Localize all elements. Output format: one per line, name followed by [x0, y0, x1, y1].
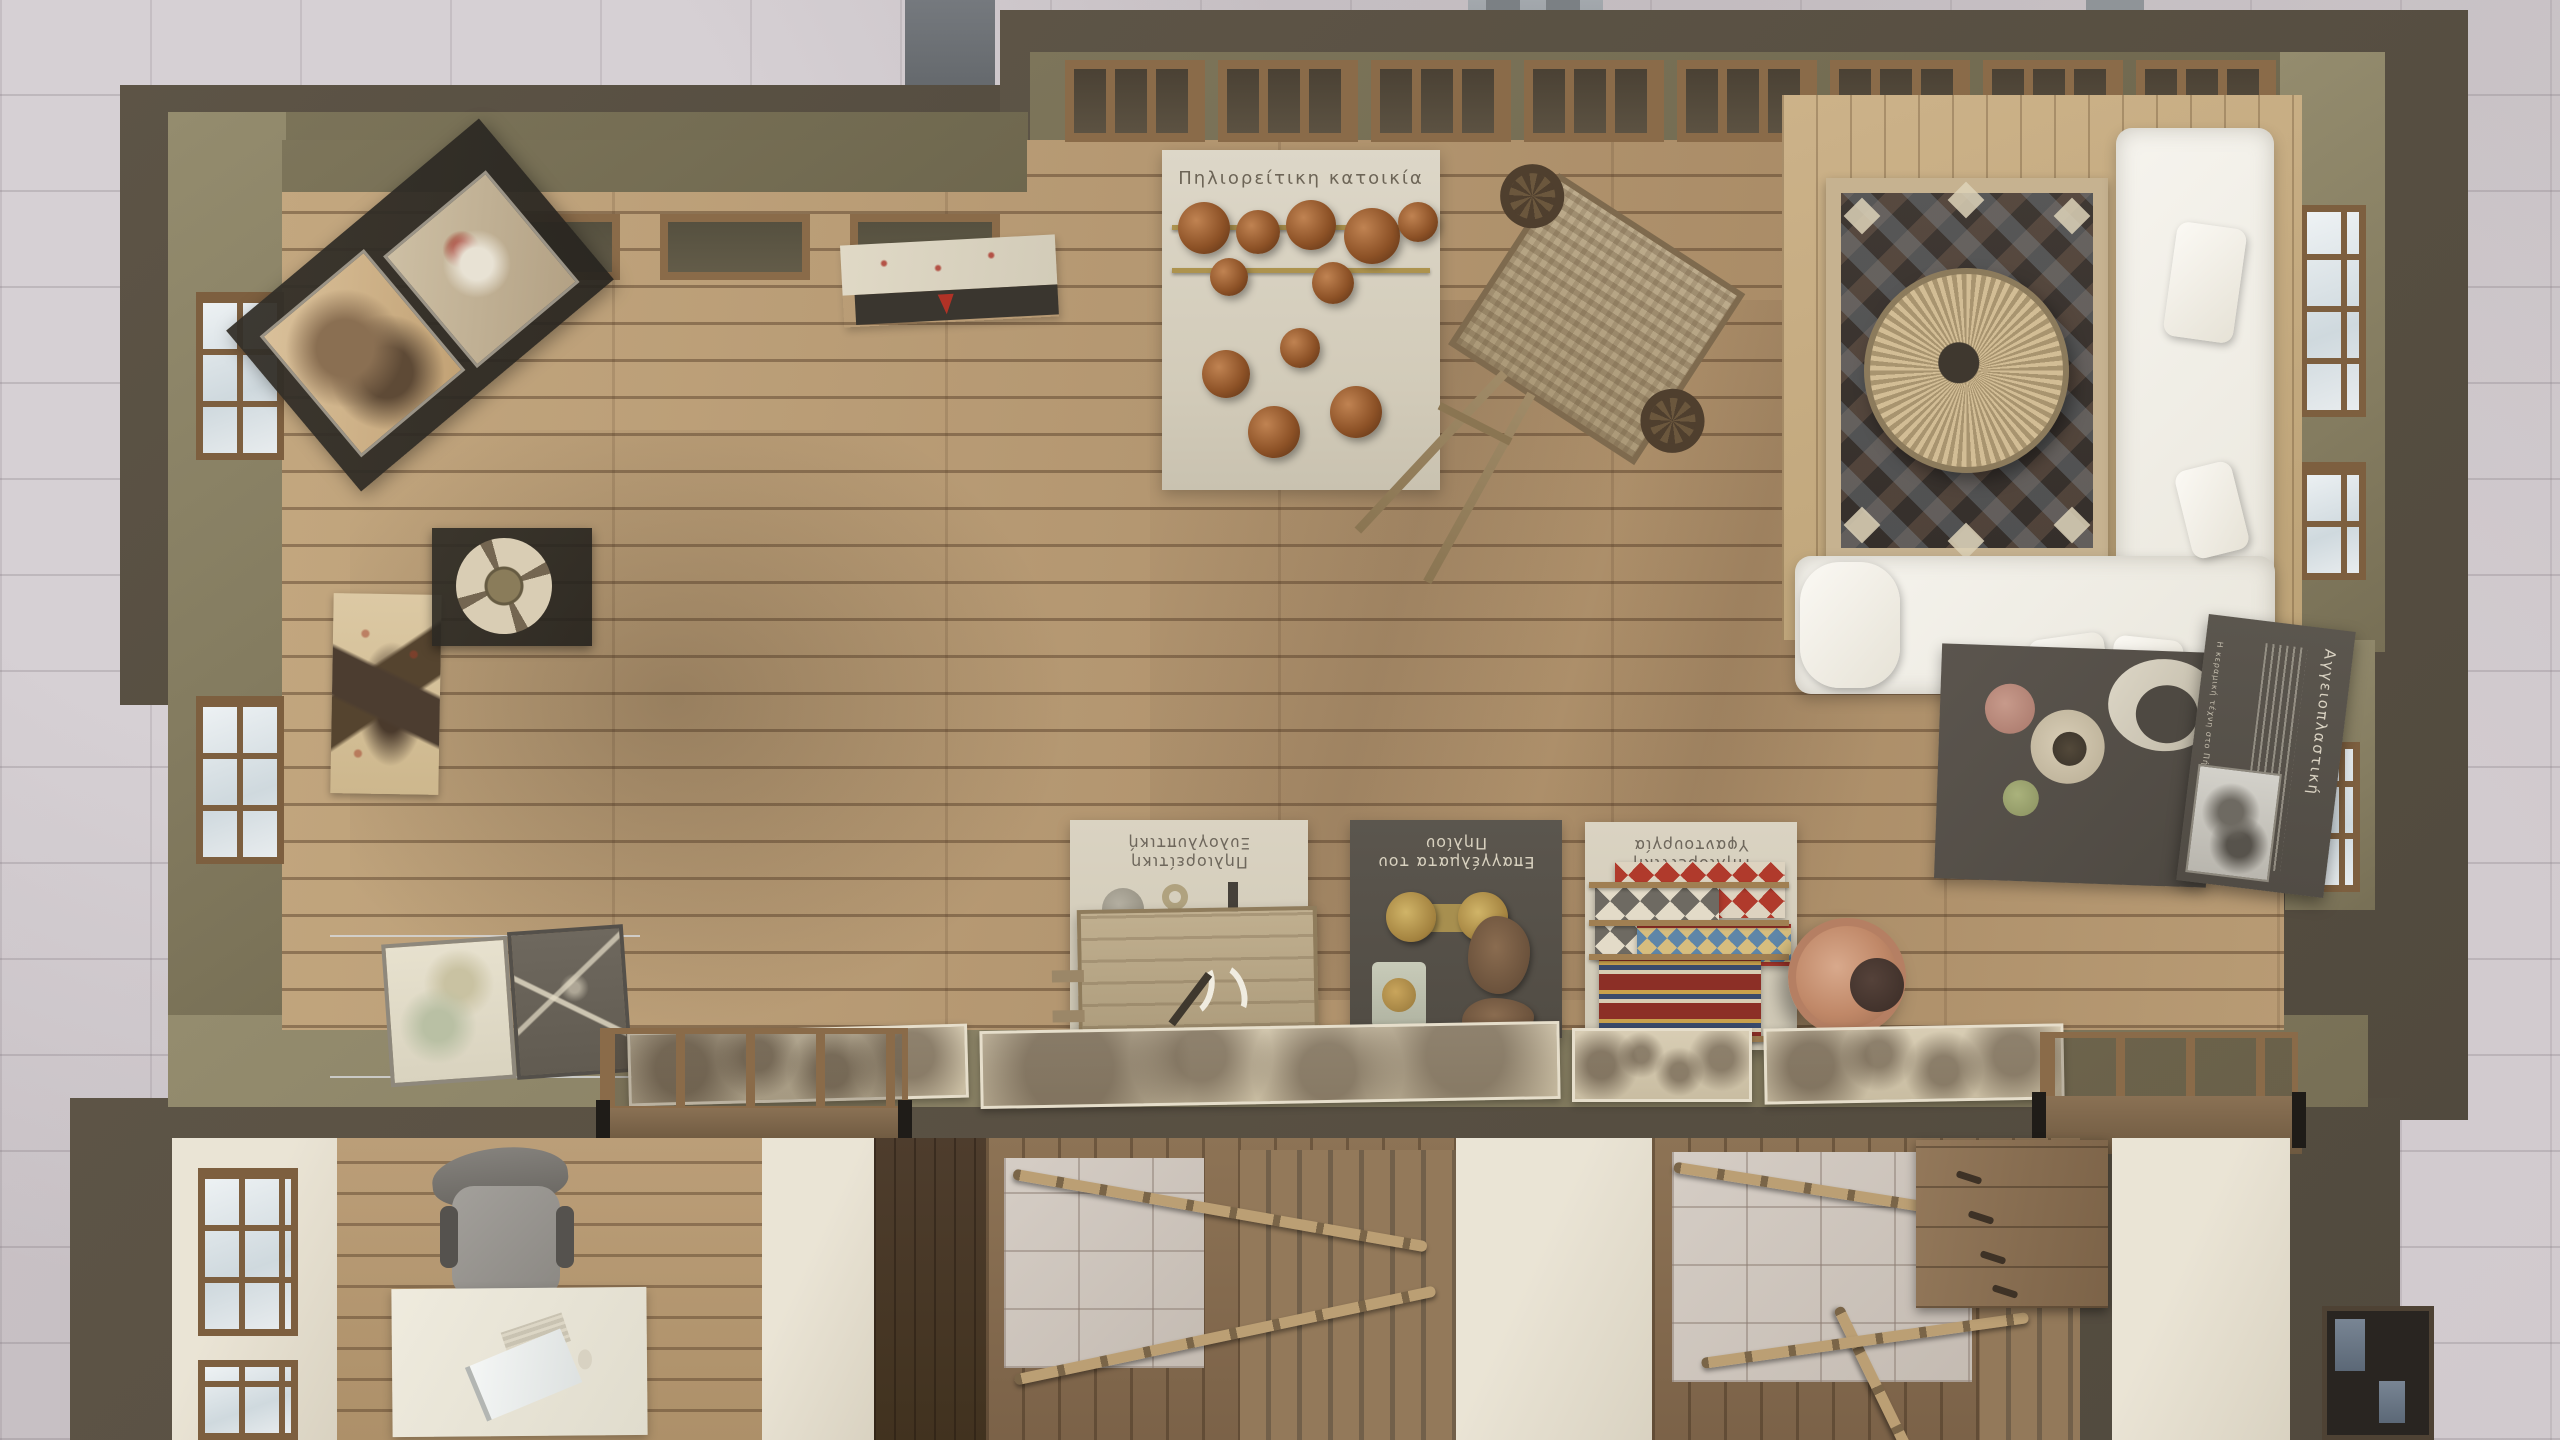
left-wall-window — [196, 696, 284, 864]
chest-of-drawers — [1916, 1140, 2108, 1308]
textile-rod — [1589, 882, 1789, 888]
vise-bar — [1052, 970, 1084, 983]
sofa-armrest-roll — [1800, 562, 1900, 688]
mouse — [578, 1349, 592, 1369]
chair-armrest — [440, 1206, 458, 1268]
rug-motif — [2054, 507, 2091, 544]
right-wall-window — [2300, 462, 2366, 580]
pink-clay-pot — [1984, 683, 2036, 735]
window-glint — [2335, 1319, 2365, 1371]
drawer-handle — [1956, 1170, 1983, 1185]
dark-wood-partition — [874, 1138, 986, 1440]
roof-block — [905, 0, 995, 86]
museum-top-view-render: Πηλιορείτικη κατοικία — [0, 0, 2560, 1440]
woven-pendant-lamp-top-view — [1864, 268, 2069, 473]
copper-pot — [1312, 262, 1354, 304]
copper-kettle — [1330, 386, 1382, 438]
copper-kettle — [1248, 406, 1300, 458]
animal-hide — [1468, 916, 1530, 994]
copper-pitcher — [1280, 328, 1320, 368]
exhibit-title-katoikia: Πηλιορείτικη κατοικία — [1162, 168, 1440, 189]
potter-photo — [2185, 764, 2282, 882]
wrench-ring — [1162, 884, 1188, 910]
window-glint — [2379, 1381, 2405, 1423]
office-chair-seat — [452, 1186, 560, 1298]
historic-photo-strip — [979, 1021, 1560, 1109]
historic-photo-strip — [1572, 1028, 1752, 1102]
clerestory-window — [660, 214, 810, 280]
wall-face-notch — [282, 140, 1027, 192]
jug-display-case — [432, 528, 592, 646]
chair-armrest — [556, 1206, 574, 1268]
exhibit-title-epaggelmata: Επαγγέλματα του Πηλίου — [1350, 834, 1562, 872]
clerestory-window — [1524, 60, 1664, 142]
vise-bar — [1053, 1010, 1085, 1023]
exhibit-title-aggeioplastiki: Αγγειοπλαστική — [2304, 648, 2340, 797]
grinder-brass-dome — [1382, 978, 1416, 1012]
monitor — [465, 1328, 582, 1421]
pottery-display-platform — [1934, 643, 2214, 887]
exhibit-panel-epaggelmata: Επαγγέλματα του Πηλίου — [1350, 820, 1562, 1038]
copper-pot — [1344, 208, 1400, 264]
drawer-handle — [1968, 1210, 1995, 1225]
stairwell-window — [2322, 1306, 2434, 1440]
copper-pot — [1178, 202, 1230, 254]
lower-wall-cream — [1456, 1138, 1652, 1440]
textile-rod — [1589, 954, 1789, 960]
exhibit-panel-yfantourgia: Πηλιορείτικη Υφαντουργία — [1585, 822, 1797, 1050]
office-window — [198, 1168, 298, 1336]
door-post — [2292, 1092, 2306, 1148]
textile-rod — [1589, 920, 1789, 926]
rug-motif — [2054, 198, 2091, 235]
brass-bell-disc — [1386, 892, 1436, 942]
copper-pot — [1210, 258, 1248, 296]
rug-motif — [1948, 182, 1985, 219]
green-clay-jug — [2002, 780, 2039, 817]
jar-mouth — [1850, 958, 1904, 1012]
window-mullions — [1533, 69, 1655, 133]
left-doorway-trellis — [600, 1028, 908, 1112]
drawer-handle — [1980, 1250, 2007, 1265]
floor-info-sign — [840, 234, 1059, 327]
wall-face-left — [168, 112, 286, 1052]
lower-wall-cream — [2112, 1138, 2290, 1440]
clerestory-window — [1218, 60, 1358, 142]
window-mullions — [1380, 69, 1502, 133]
exhibit-title-xylogliptiki: Πηλιορείτικη Ξυλογλυπτική — [1070, 834, 1308, 872]
sign-red-arrow — [938, 294, 955, 315]
panel-caption: Η κεραμική τέχνη στο Πήλιο — [2198, 641, 2224, 782]
right-wall-window — [2300, 205, 2366, 417]
folk-art-print — [330, 593, 441, 795]
copper-pot — [1398, 202, 1438, 242]
clerestory-window — [1371, 60, 1511, 142]
copper-cauldron — [1202, 350, 1250, 398]
clerestory-window — [1065, 60, 1205, 142]
office-window — [198, 1360, 298, 1440]
window-mullions — [1227, 69, 1349, 133]
lower-wall-cream — [762, 1138, 874, 1440]
copper-pot — [1286, 200, 1336, 250]
copper-pot — [1236, 210, 1280, 254]
decorated-ceramic-jug — [456, 538, 552, 634]
left-door-threshold — [598, 1108, 910, 1142]
window-mullions — [1074, 69, 1196, 133]
rug-motif — [1844, 507, 1881, 544]
framed-map-light — [381, 936, 517, 1087]
terracotta-jar — [1788, 918, 1906, 1036]
historic-photo-strip — [1763, 1023, 2064, 1104]
reception-desk — [391, 1287, 647, 1437]
rug-motif — [1844, 198, 1881, 235]
rug-motif — [1948, 523, 1985, 560]
drawer-handle — [1992, 1284, 2019, 1299]
